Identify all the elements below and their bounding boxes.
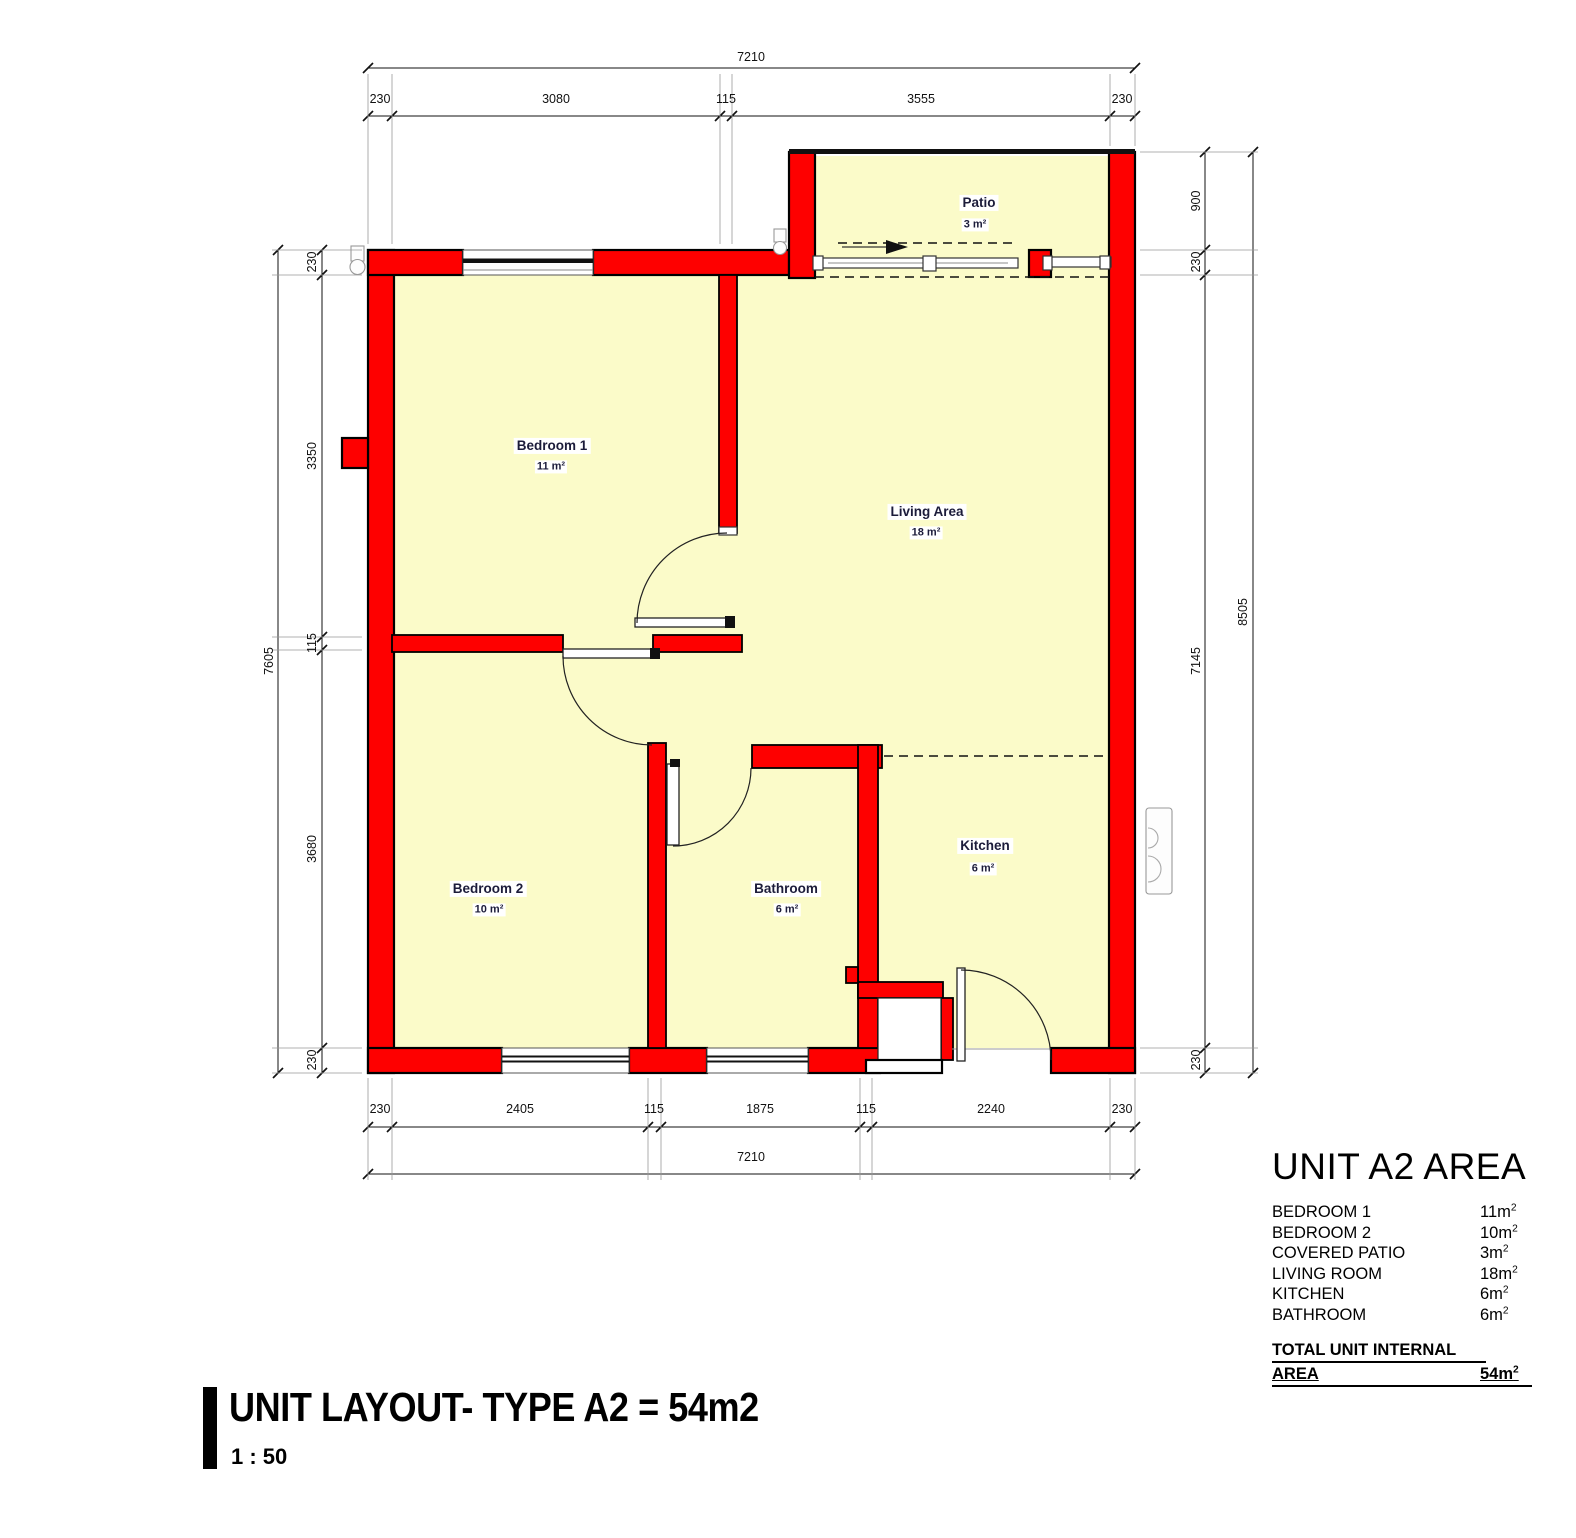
area-row-label: BEDROOM 2 (1272, 1223, 1480, 1244)
room-label-bedroom1: Bedroom 1 (514, 438, 591, 454)
wall-bottom-segment-4 (1051, 1048, 1135, 1073)
dim-right-overall: 8505 (1237, 598, 1250, 626)
door-bathroom-leaf (667, 764, 679, 845)
wall-shaft-bump (846, 967, 858, 983)
room-area-bedroom2: 10 m² (473, 903, 506, 916)
drawing-scale: 1 : 50 (231, 1444, 287, 1470)
wall-shaft-top (858, 982, 943, 998)
area-row-value: 6m2 (1480, 1305, 1532, 1326)
room-area-living: 18 m² (910, 526, 943, 539)
door-bedroom1-jamb (719, 527, 737, 535)
dim-bottom-seg-6: 2240 (977, 1103, 1005, 1116)
shaft-void (878, 998, 941, 1062)
dim-bottom-seg-4: 1875 (746, 1103, 774, 1116)
door-bedroom1-leaf (635, 618, 727, 627)
dim-left-seg-4: 3680 (306, 835, 319, 863)
area-row-value: 11m2 (1480, 1202, 1532, 1223)
dim-right-seg-2: 230 (1190, 252, 1203, 273)
dim-bottom-seg-7: 230 (1112, 1103, 1133, 1116)
service-shaft (866, 998, 942, 1073)
dim-bottom-overall: 7210 (737, 1151, 765, 1164)
patio-edge-line (789, 149, 1135, 154)
door-bedroom2-leaf (563, 649, 653, 658)
wall-bedroom1-bedroom2-left (392, 635, 563, 652)
dim-bottom-seg-3: 115 (644, 1103, 664, 1116)
wall-bottom-segment-2 (629, 1048, 707, 1073)
wall-exterior-right (1109, 152, 1135, 1073)
area-row-value: 3m2 (1480, 1243, 1532, 1264)
dim-right-seg-4: 230 (1190, 1050, 1203, 1071)
area-row-label: COVERED PATIO (1272, 1243, 1480, 1264)
downpipe-patio-icon (774, 229, 787, 255)
area-schedule-row: KITCHEN6m2 (1272, 1284, 1532, 1305)
sink-unit-icon (1146, 808, 1172, 894)
dim-top-seg-3: 115 (716, 93, 736, 106)
dim-left-seg-5: 230 (306, 1050, 319, 1071)
area-schedule-rows: BEDROOM 111m2BEDROOM 210m2COVERED PATIO3… (1272, 1202, 1532, 1325)
wall-shaft-right (941, 998, 953, 1060)
dim-right-seg-3: 7145 (1190, 647, 1203, 675)
dim-top-seg-5: 230 (1112, 93, 1133, 106)
dim-right-seg-1: 900 (1190, 191, 1203, 212)
room-area-patio: 3 m² (962, 218, 989, 231)
area-schedule: UNIT A2 AREA BEDROOM 111m2BEDROOM 210m2C… (1272, 1146, 1532, 1387)
area-schedule-title: UNIT A2 AREA (1272, 1146, 1532, 1188)
door-bedroom2-hinge (650, 648, 660, 659)
window-bedroom1 (463, 250, 593, 275)
window-bedroom2 (502, 1048, 629, 1073)
total-label-line1: TOTAL UNIT INTERNAL (1272, 1341, 1486, 1363)
dim-left-seg-1: 230 (306, 252, 319, 273)
room-label-living: Living Area (887, 504, 966, 520)
area-row-value: 18m2 (1480, 1264, 1532, 1285)
room-area-kitchen: 6 m² (970, 862, 997, 875)
door-entry-leaf (957, 968, 965, 1061)
room-area-bathroom: 6 m² (774, 903, 801, 916)
door-bedroom1-hinge (725, 616, 735, 628)
area-schedule-row: BATHROOM6m2 (1272, 1305, 1532, 1326)
wall-patio-left (789, 152, 815, 278)
dim-top-overall: 7210 (737, 51, 765, 64)
total-label-line2: AREA (1272, 1365, 1480, 1384)
wall-bedroom1-bedroom2-right (653, 635, 742, 652)
dim-left-overall: 7605 (263, 647, 276, 675)
wall-bedroom1-living (719, 275, 737, 533)
area-schedule-row: COVERED PATIO3m2 (1272, 1243, 1532, 1264)
door-bathroom-hinge (670, 759, 680, 767)
main-floor-fill (394, 275, 1109, 1048)
wall-bottom-segment-1 (368, 1048, 502, 1073)
slide-jamb-right (1100, 256, 1110, 269)
total-value: 54m2 (1480, 1365, 1532, 1384)
room-label-patio: Patio (959, 195, 998, 211)
area-row-value: 6m2 (1480, 1284, 1532, 1305)
room-area-bedroom1: 11 m² (535, 460, 567, 473)
area-row-label: BATHROOM (1272, 1305, 1480, 1326)
dim-top-seg-1: 230 (370, 93, 391, 106)
slide-jamb-mid (1043, 256, 1052, 270)
dim-left-seg-2: 3350 (306, 442, 319, 470)
room-label-bathroom: Bathroom (751, 881, 821, 897)
wall-left-stub (342, 438, 368, 468)
dim-top-seg-2: 3080 (542, 93, 570, 106)
area-row-label: BEDROOM 1 (1272, 1202, 1480, 1223)
dim-bottom-seg-1: 230 (370, 1103, 391, 1116)
area-row-label: LIVING ROOM (1272, 1264, 1480, 1285)
dim-top-seg-4: 3555 (907, 93, 935, 106)
area-row-label: KITCHEN (1272, 1284, 1480, 1305)
area-schedule-row: LIVING ROOM18m2 (1272, 1264, 1532, 1285)
dim-bottom-seg-2: 2405 (506, 1103, 534, 1116)
window-bathroom (707, 1048, 808, 1073)
wall-top-mid-segment (593, 250, 789, 275)
slide-jamb-left (813, 256, 823, 270)
shaft-access-panel (866, 1060, 942, 1073)
room-label-kitchen: Kitchen (957, 838, 1013, 854)
title-bar-mark (203, 1387, 217, 1469)
area-schedule-total: TOTAL UNIT INTERNAL AREA 54m2 (1272, 1341, 1532, 1387)
wall-top-left-segment (368, 250, 463, 275)
area-row-value: 10m2 (1480, 1223, 1532, 1244)
dim-bottom-seg-5: 115 (856, 1103, 876, 1116)
floor-plan-sheet: 7210 230 3080 115 3555 230 230 2405 115 … (0, 0, 1576, 1538)
drawing-title: UNIT LAYOUT- TYPE A2 = 54m2 (229, 1384, 759, 1431)
total-row: AREA 54m2 (1272, 1365, 1532, 1387)
wall-exterior-left (368, 250, 394, 1073)
area-schedule-row: BEDROOM 210m2 (1272, 1223, 1532, 1244)
wall-kitchen-left (858, 745, 878, 1048)
slide-interlock (923, 256, 936, 271)
dim-left-seg-3: 115 (306, 633, 319, 653)
area-schedule-row: BEDROOM 111m2 (1272, 1202, 1532, 1223)
wall-bathroom-left (648, 743, 666, 1048)
room-label-bedroom2: Bedroom 2 (450, 881, 527, 897)
